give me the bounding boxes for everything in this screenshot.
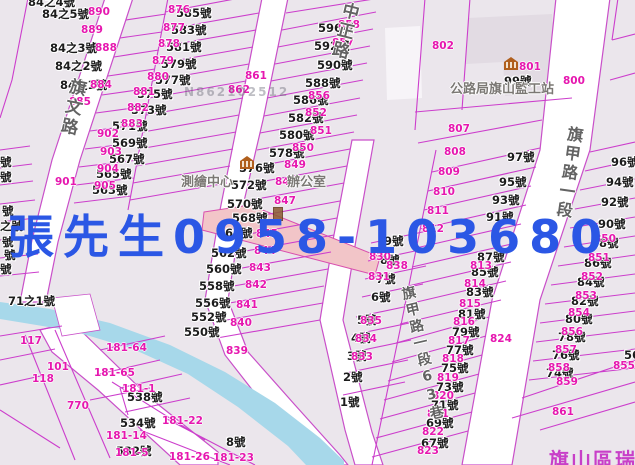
parcel-number-label: 802 (432, 41, 454, 53)
house-number-label: 558號 (199, 280, 235, 293)
parcel-number-label: 834 (355, 334, 377, 346)
parcel-number-label: 882 (127, 103, 149, 115)
house-number-label: 96號 (611, 156, 635, 169)
parcel-number-label: 118 (32, 374, 54, 386)
phone-watermark: 張先生0958-103680 (8, 201, 611, 267)
parcel-number-label: 904 (97, 164, 119, 176)
parcel-number-label: 850 (292, 143, 314, 155)
parcel-number-label: 839 (226, 346, 248, 358)
parcel-number-label: 876 (168, 5, 190, 17)
parcel-number-label: 858 (548, 363, 570, 375)
house-number-label: 94號 (606, 176, 634, 189)
house-number-label: 號 (0, 156, 12, 169)
house-number-label: 84之2號 (55, 60, 102, 73)
landmark-label: 測繪中心 (181, 176, 233, 190)
parcel-number-label: 856 (561, 327, 583, 339)
parcel-number-label: 833 (351, 352, 373, 364)
house-number-label: 84之3號 (50, 42, 97, 55)
road-name-label: 旗甲路一段63巷 (398, 284, 444, 424)
parcel-number-label: 852 (581, 272, 603, 284)
parcel-number-label: 905 (94, 181, 116, 193)
parcel-number-label: 801 (519, 62, 541, 74)
parcel-number-label: 800 (563, 76, 585, 88)
house-number-label: 8號 (226, 436, 246, 449)
map-code-watermark: N862102512 (184, 85, 289, 99)
parcel-number-label: 852 (305, 108, 327, 120)
parcel-number-label: 851 (310, 126, 332, 138)
parcel-number-label: 877 (163, 23, 185, 35)
parcel-number-label: 902 (97, 129, 119, 141)
parcel-number-label: 878 (158, 39, 180, 51)
parcel-number-label: 901 (55, 177, 77, 189)
parcel-number-label: 861 (245, 71, 267, 83)
parcel-number-label: 835 (360, 316, 382, 328)
parcel-number-label: 770 (67, 401, 89, 413)
parcel-number-label: 181-5 (115, 448, 149, 460)
parcel-number-label: 855 (613, 361, 635, 373)
parcel-number-label: 808 (444, 147, 466, 159)
house-number-label: 588號 (305, 77, 341, 90)
house-number-label: 2號 (343, 371, 363, 384)
parcel-number-label: 903 (100, 147, 122, 159)
landmark-building-icon (240, 156, 254, 169)
landmark-label: 辦公室 (287, 176, 326, 190)
parcel-number-label: 881 (133, 87, 155, 99)
parcel-number-label: 181-14 (106, 431, 147, 443)
parcel-number-label: 819 (437, 373, 459, 385)
house-number-label: 590號 (317, 59, 353, 72)
parcel-number-label: 181-26 (169, 452, 210, 464)
parcel-number-label: 841 (236, 300, 258, 312)
parcel-number-label: 849 (284, 160, 306, 172)
parcel-number-label: 840 (230, 318, 252, 330)
parcel-number-label: 842 (245, 280, 267, 292)
parcel-number-label: 861 (552, 407, 574, 419)
parcel-number-label: 888 (95, 43, 117, 55)
parcel-number-label: 824 (490, 334, 512, 346)
parcel-number-label: 890 (88, 7, 110, 19)
parcel-number-label: 831 (368, 272, 390, 284)
parcel-number-label: 817 (448, 336, 470, 348)
parcel-number-label: 889 (81, 25, 103, 37)
house-number-label: 534號 (120, 417, 156, 430)
parcel-number-label: 101 (47, 362, 69, 374)
house-number-label: 97號 (507, 151, 535, 164)
parcel-number-label: 823 (417, 446, 439, 458)
parcel-number-label: 814 (464, 279, 486, 291)
parcel-number-label: 822 (422, 427, 444, 439)
house-number-label: 71之1號 (8, 295, 55, 308)
house-number-label: 84之5號 (42, 8, 89, 21)
landmark-building-icon (504, 57, 518, 70)
house-number-label: 552號 (191, 311, 227, 324)
parcel-number-label: 856 (308, 91, 330, 103)
parcel-number-label: 117 (20, 336, 42, 348)
parcel-number-label: 181-23 (213, 453, 254, 465)
house-number-label: 1號 (340, 396, 360, 409)
parcel-number-label: 181-65 (94, 368, 135, 380)
parcel-number-label: 859 (556, 377, 578, 389)
parcel-number-label: 181-1 (122, 384, 156, 396)
house-number-label: 號 (0, 171, 12, 184)
parcel-number-label: 815 (459, 299, 481, 311)
parcel-number-label: 880 (147, 72, 169, 84)
landmark-label: 公路局旗山監工站 (450, 83, 554, 97)
parcel-number-label: 884 (90, 80, 112, 92)
parcel-number-label: 807 (448, 124, 470, 136)
parcel-number-label: 181-22 (162, 416, 203, 428)
parcel-number-label: 883 (121, 119, 143, 131)
house-number-label: 556號 (195, 297, 231, 310)
house-number-label: 6號 (371, 291, 391, 304)
parcel-number-label: 818 (442, 354, 464, 366)
parcel-number-label: 854 (568, 308, 590, 320)
parcel-number-label: 816 (453, 317, 475, 329)
parcel-number-label: 857 (555, 345, 577, 357)
house-number-label: 572號 (231, 179, 267, 192)
parcel-number-label: 879 (152, 56, 174, 68)
house-number-label: 95號 (499, 176, 527, 189)
parcel-number-label: 853 (575, 291, 597, 303)
parcel-number-label: 810 (433, 187, 455, 199)
district-label: 旗山區瑞 (549, 444, 635, 465)
house-number-label: 550號 (184, 326, 220, 339)
cadastral-map[interactable]: 84之4號84之5號84之3號84之2號84之1號585號583號581號579… (0, 0, 635, 465)
parcel-number-label: 181-64 (106, 343, 147, 355)
parcel-number-label: 809 (438, 167, 460, 179)
